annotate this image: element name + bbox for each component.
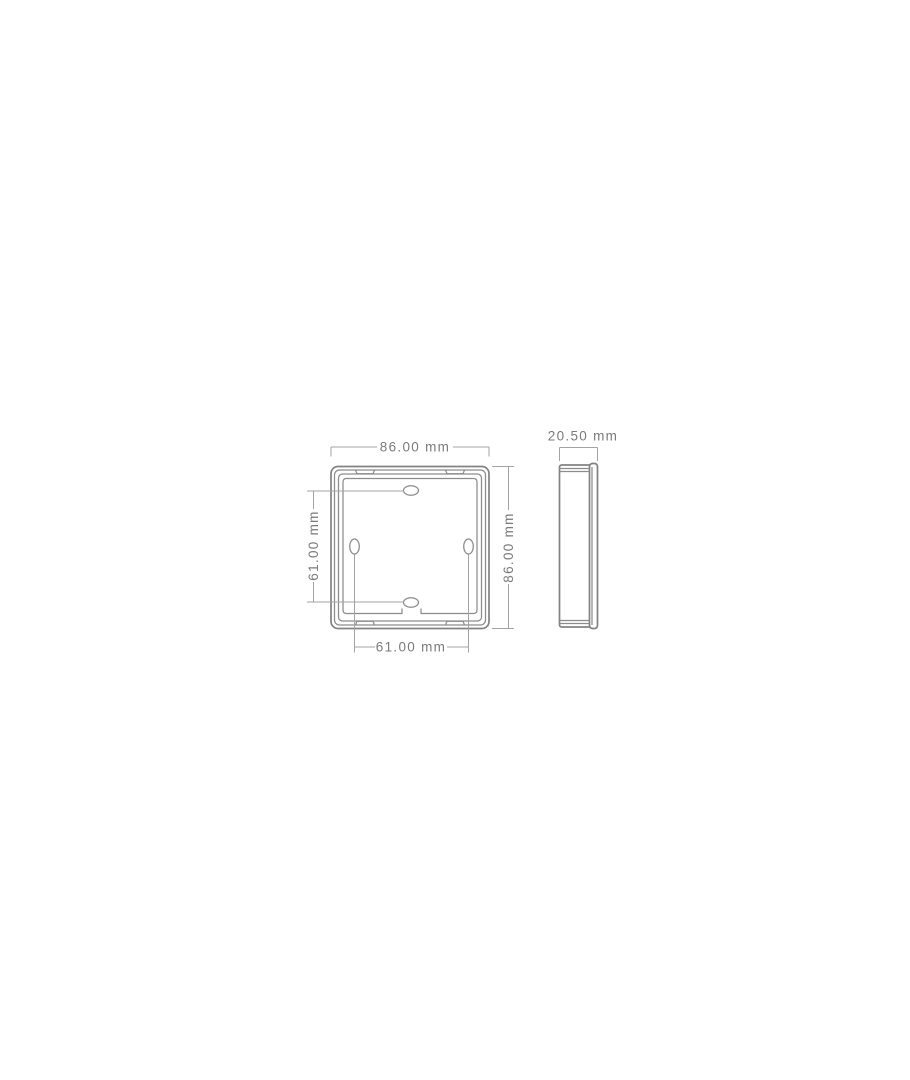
front-width-label: 86.00 mm [380,440,450,455]
technical-drawing-page: 86.00 mm 86.00 mm 61.00 mm 61.00 mm [0,0,910,1080]
dimension-front-width: 86.00 mm [331,440,489,457]
slot-spacing-horizontal-label: 61.00 mm [376,640,446,655]
dimension-drawing-svg: 86.00 mm 86.00 mm 61.00 mm 61.00 mm [0,0,910,1080]
dimension-slot-spacing-horizontal: 61.00 mm [355,555,469,655]
dimension-front-height: 86.00 mm [492,467,516,629]
mounting-slot-top [404,486,419,496]
front-third-outline [339,474,482,621]
side-depth-label: 20.50 mm [548,429,618,444]
dimension-side-depth: 20.50 mm [548,429,618,462]
mounting-slot-bottom [404,598,419,608]
front-height-label: 86.00 mm [501,512,516,582]
mounting-slot-left [350,539,360,554]
slot-spacing-vertical-label: 61.00 mm [306,510,321,580]
side-front-plate-strip [590,464,598,629]
side-back-box-outline [560,465,590,627]
side-view [560,464,598,629]
front-inner-frame-with-cable-notch [343,479,477,614]
mounting-slot-right [464,539,474,554]
